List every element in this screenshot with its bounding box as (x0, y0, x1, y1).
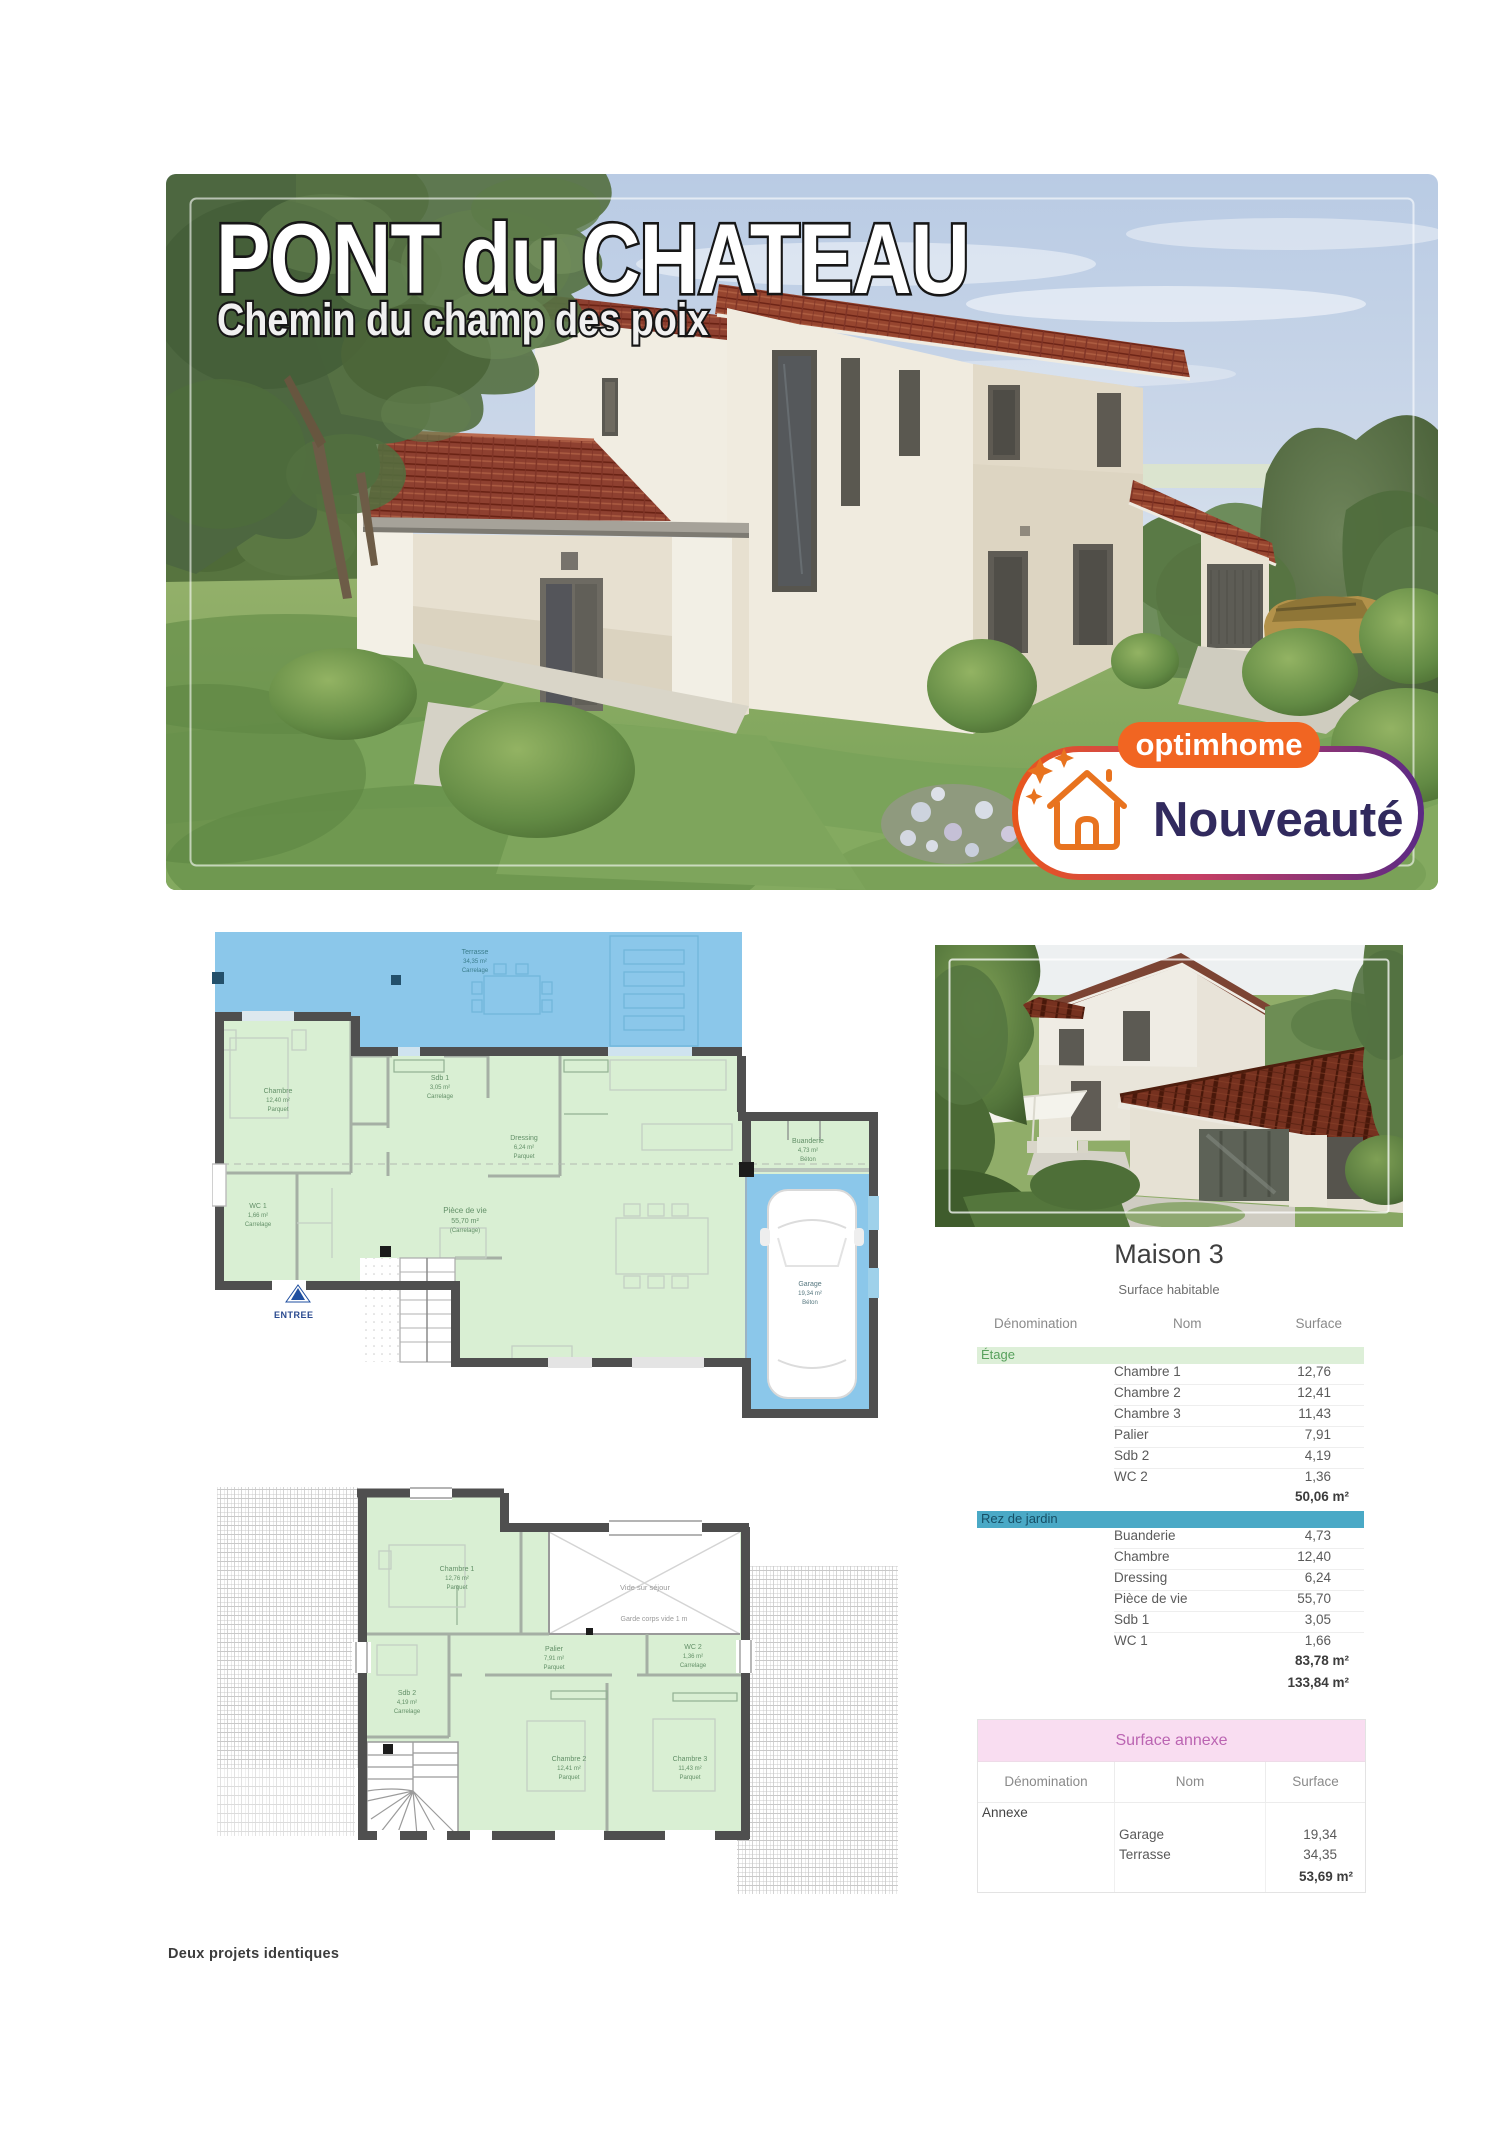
svg-text:Garde corps vide 1 m: Garde corps vide 1 m (621, 1616, 688, 1623)
svg-text:11,43 m²: 11,43 m² (678, 1766, 701, 1772)
svg-text:Béton: Béton (800, 1157, 816, 1163)
svg-text:optimhome: optimhome (1135, 727, 1302, 762)
svg-text:12,41 m²: 12,41 m² (557, 1766, 581, 1772)
svg-text:Chambre 2: Chambre 2 (552, 1756, 587, 1763)
svg-text:1,66 m²: 1,66 m² (248, 1213, 268, 1219)
svg-text:Parquet: Parquet (267, 1107, 288, 1113)
svg-text:ENTREE: ENTREE (274, 1310, 314, 1320)
svg-text:Parquet: Parquet (679, 1775, 700, 1781)
svg-text:6,24 m²: 6,24 m² (514, 1145, 534, 1151)
svg-text:1,36 m²: 1,36 m² (683, 1654, 703, 1660)
svg-text:Garage: Garage (798, 1281, 821, 1288)
svg-text:7,91 m²: 7,91 m² (544, 1656, 564, 1662)
svg-text:34,35 m²: 34,35 m² (463, 959, 487, 965)
svg-text:Parquet: Parquet (543, 1665, 564, 1671)
svg-text:Sdb 2: Sdb 2 (398, 1690, 416, 1697)
svg-text:Parquet: Parquet (558, 1775, 579, 1781)
svg-text:Carrelage: Carrelage (394, 1709, 421, 1715)
svg-text:Parquet: Parquet (513, 1154, 534, 1160)
svg-text:Chambre: Chambre (264, 1088, 293, 1095)
svg-text:Chemin du champ des poix: Chemin du champ des poix (217, 294, 708, 345)
svg-text:Dressing: Dressing (510, 1135, 538, 1142)
svg-text:55,70 m²: 55,70 m² (451, 1218, 479, 1225)
svg-text:WC 2: WC 2 (684, 1644, 702, 1651)
svg-text:Chambre 1: Chambre 1 (440, 1566, 475, 1573)
svg-text:Buanderie: Buanderie (792, 1138, 824, 1145)
svg-text:4,73 m²: 4,73 m² (798, 1148, 818, 1154)
svg-text:Béton: Béton (802, 1300, 818, 1306)
svg-text:Carrelage: Carrelage (462, 968, 489, 974)
svg-text:Parquet: Parquet (446, 1585, 467, 1591)
svg-text:3,05 m²: 3,05 m² (430, 1085, 450, 1091)
svg-text:Vide sur séjour: Vide sur séjour (620, 1583, 670, 1592)
svg-text:WC 1: WC 1 (249, 1203, 267, 1210)
svg-text:Terrasse: Terrasse (462, 949, 489, 956)
svg-text:12,76 m²: 12,76 m² (445, 1576, 469, 1582)
svg-text:19,34 m²: 19,34 m² (798, 1291, 822, 1297)
svg-text:Nouveauté: Nouveauté (1153, 793, 1404, 847)
svg-text:Sdb 1: Sdb 1 (431, 1075, 449, 1082)
svg-text:12,40 m²: 12,40 m² (266, 1098, 290, 1104)
svg-text:(Carrelage): (Carrelage) (450, 1228, 480, 1234)
svg-text:Chambre 3: Chambre 3 (673, 1756, 708, 1763)
svg-text:Pièce de vie: Pièce de vie (443, 1206, 487, 1215)
svg-text:Palier: Palier (545, 1646, 564, 1653)
svg-text:Carrelage: Carrelage (427, 1094, 454, 1100)
svg-text:4,19 m²: 4,19 m² (397, 1700, 417, 1706)
svg-text:Carrelage: Carrelage (680, 1663, 707, 1669)
svg-text:Carrelage: Carrelage (245, 1222, 272, 1228)
